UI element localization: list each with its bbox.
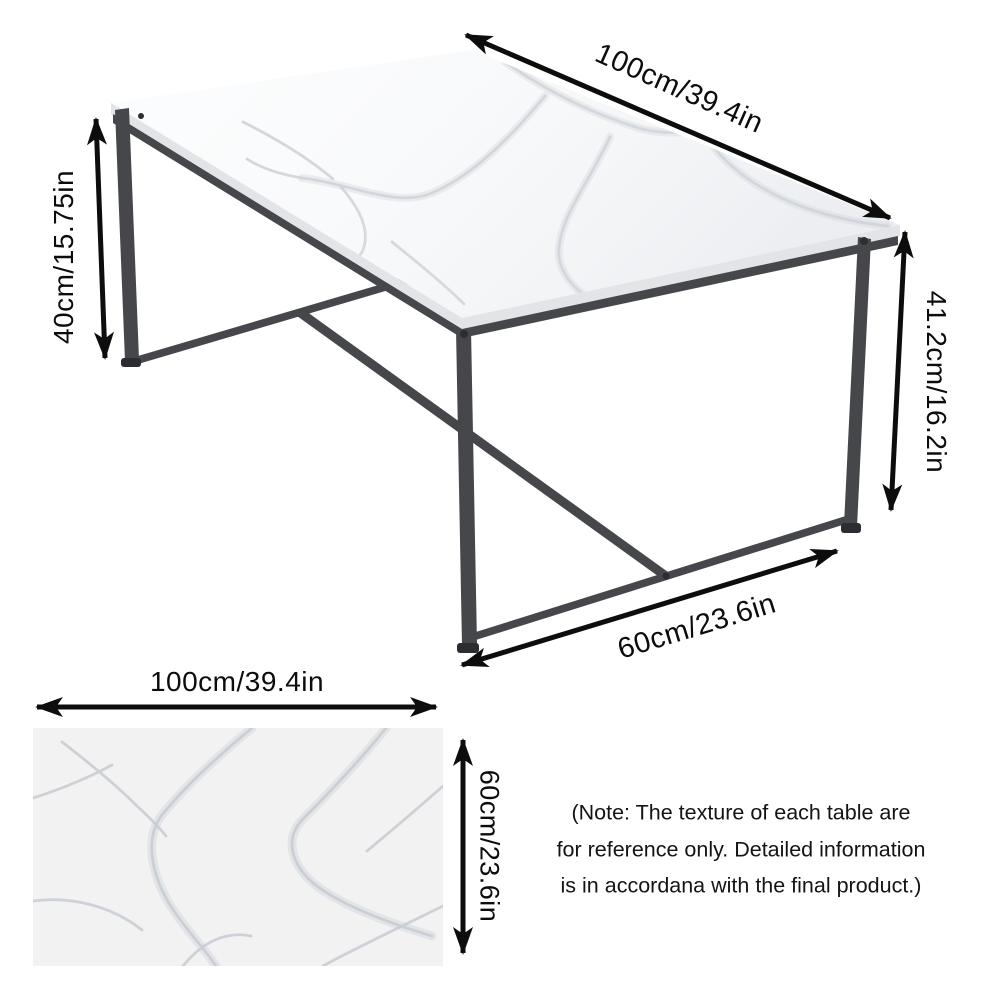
bolt	[860, 237, 868, 245]
bolt	[663, 573, 670, 580]
note-text-line-3: is in accordana with the final product.)	[557, 867, 926, 904]
dimension-label-swatch-height: 60cm/23.6in	[474, 770, 505, 923]
note-text: (Note: The texture of each table are for…	[557, 794, 926, 904]
leg-foot-left	[121, 358, 141, 367]
frame-left-leg	[115, 108, 139, 361]
leg-foot-front	[457, 643, 479, 653]
dimension-label-left-height: 40cm/15.75in	[48, 170, 80, 344]
marble-swatch	[33, 728, 443, 966]
frame-front-leg	[456, 329, 477, 646]
note-text-line-1: (Note: The texture of each table are	[557, 794, 926, 831]
dimension-arrow-right-height	[891, 232, 905, 510]
note-text-line-2: for reference only. Detailed information	[557, 831, 926, 868]
bolt	[138, 113, 144, 119]
dimension-label-right-height: 41.2cm/16.2in	[920, 291, 952, 473]
dimension-arrow-left-height	[96, 119, 105, 358]
bolt	[460, 330, 468, 338]
leg-foot-right	[841, 523, 861, 533]
dimension-label-swatch-width: 100cm/39.4in	[150, 666, 324, 698]
marble-swatch-surface	[33, 728, 443, 966]
frame-cross-brace	[297, 309, 668, 579]
frame-right-leg	[844, 237, 871, 527]
product-dimension-diagram: 100cm/39.4in 40cm/15.75in 41.2cm/16.2in …	[0, 0, 1000, 1000]
